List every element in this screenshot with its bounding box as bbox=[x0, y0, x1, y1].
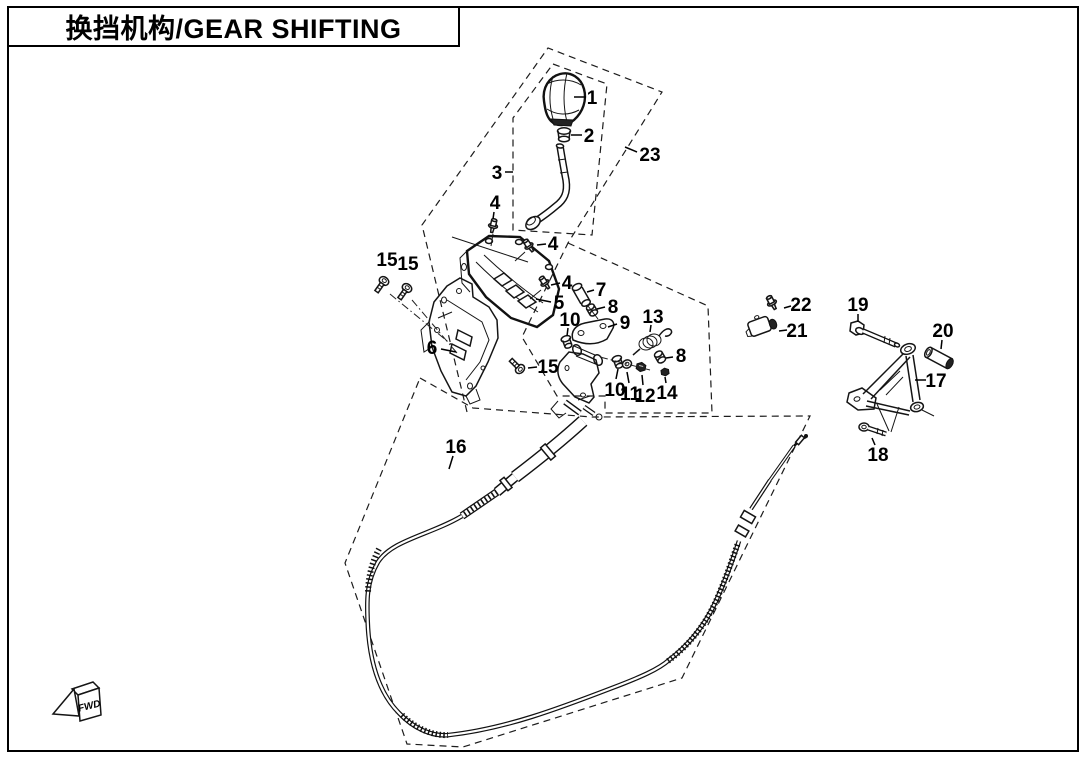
part-shift-knob bbox=[544, 73, 585, 126]
part-bushing-8b bbox=[653, 350, 666, 365]
axis-lines bbox=[452, 237, 650, 370]
part-nut-14 bbox=[661, 368, 670, 377]
part-knob-nut bbox=[558, 128, 571, 142]
svg-text:4: 4 bbox=[562, 273, 573, 294]
callout-2: 2 bbox=[571, 126, 594, 147]
part-bolt-15c bbox=[507, 356, 526, 375]
cable-clevis-fork bbox=[551, 401, 566, 418]
cable-adjuster-nut bbox=[735, 525, 749, 537]
svg-text:15: 15 bbox=[376, 250, 398, 271]
part-bolt-18 bbox=[859, 423, 886, 436]
cable-end-fitting bbox=[796, 435, 805, 444]
svg-text:15: 15 bbox=[397, 254, 419, 275]
callout-13: 13 bbox=[642, 307, 663, 332]
svg-text:23: 23 bbox=[639, 145, 660, 166]
callout-10a: 10 bbox=[559, 310, 580, 336]
fwd-marker: FWD bbox=[53, 682, 102, 721]
svg-text:20: 20 bbox=[932, 321, 953, 342]
cable-adjuster-nut bbox=[740, 510, 755, 523]
svg-text:17: 17 bbox=[925, 371, 946, 392]
svg-text:13: 13 bbox=[642, 307, 663, 328]
svg-text:4: 4 bbox=[490, 193, 501, 214]
svg-text:8: 8 bbox=[608, 297, 619, 318]
part-bolt-15b bbox=[395, 282, 413, 302]
svg-text:19: 19 bbox=[847, 295, 868, 316]
exploded-diagram: FWD 1 2 3 23 4 bbox=[0, 0, 1090, 760]
svg-text:21: 21 bbox=[786, 321, 808, 342]
part-shift-lever bbox=[523, 144, 568, 233]
part-bolt-4c bbox=[537, 274, 552, 290]
callout-1: 1 bbox=[574, 88, 598, 109]
callout-4a: 4 bbox=[490, 193, 501, 219]
svg-text:6: 6 bbox=[427, 338, 438, 359]
svg-text:7: 7 bbox=[596, 280, 607, 301]
callout-15b: 15 bbox=[397, 254, 419, 275]
callout-17: 17 bbox=[915, 371, 947, 392]
svg-text:15: 15 bbox=[537, 357, 559, 378]
svg-text:12: 12 bbox=[634, 386, 655, 407]
callout-20: 20 bbox=[932, 321, 953, 349]
part-linkage-arm bbox=[847, 342, 934, 432]
callout-12: 12 bbox=[634, 375, 655, 407]
part-spring bbox=[633, 329, 672, 355]
part-bolt-15a bbox=[372, 275, 390, 295]
knob-collar bbox=[551, 119, 573, 126]
svg-text:3: 3 bbox=[492, 163, 503, 184]
svg-text:10: 10 bbox=[559, 310, 580, 331]
svg-text:2: 2 bbox=[584, 126, 595, 147]
callout-15a: 15 bbox=[376, 250, 398, 271]
callout-4b: 4 bbox=[537, 234, 559, 255]
part-bolt-22 bbox=[764, 294, 779, 311]
svg-text:9: 9 bbox=[620, 313, 631, 334]
callout-15c: 15 bbox=[528, 357, 559, 378]
callouts: 1 2 3 23 4 4 4 bbox=[376, 88, 953, 469]
part-shift-cable bbox=[367, 396, 808, 735]
callout-14: 14 bbox=[656, 377, 678, 404]
part-pin bbox=[571, 282, 591, 308]
callout-7: 7 bbox=[587, 280, 606, 301]
callout-22: 22 bbox=[784, 295, 812, 316]
callout-19: 19 bbox=[847, 295, 868, 322]
callout-3: 3 bbox=[492, 163, 513, 184]
parts-diagram-page: 换挡机构/GEAR SHIFTING bbox=[0, 0, 1090, 760]
part-bolt-19 bbox=[850, 321, 900, 348]
callout-18: 18 bbox=[867, 438, 888, 466]
svg-text:16: 16 bbox=[445, 437, 466, 458]
callout-8b: 8 bbox=[666, 346, 686, 367]
part-gear-switch bbox=[742, 310, 778, 338]
callout-23: 23 bbox=[625, 145, 661, 166]
part-bolt-4a bbox=[487, 218, 499, 233]
callout-21: 21 bbox=[779, 321, 808, 342]
svg-text:18: 18 bbox=[867, 445, 888, 466]
part-sleeve-20 bbox=[923, 346, 955, 370]
svg-text:1: 1 bbox=[587, 88, 598, 109]
callout-16: 16 bbox=[445, 437, 466, 469]
svg-text:14: 14 bbox=[656, 383, 678, 404]
svg-text:4: 4 bbox=[548, 234, 559, 255]
svg-text:22: 22 bbox=[790, 295, 811, 316]
svg-text:8: 8 bbox=[676, 346, 687, 367]
